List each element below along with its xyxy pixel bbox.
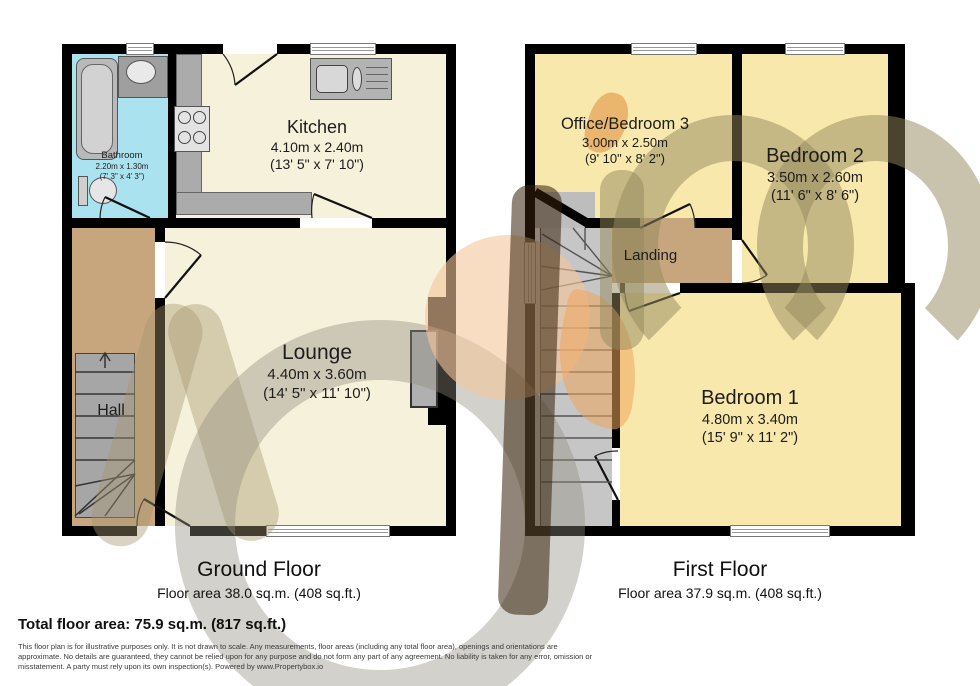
room-name: Office/Bedroom 3 — [530, 114, 720, 135]
room-dim-imperial: (11' 6" x 8' 6") — [735, 187, 895, 205]
disclaimer-text: This floor plan is for illustrative purp… — [18, 642, 968, 672]
landing-label: Landing — [603, 247, 698, 266]
room-name: Lounge — [182, 340, 452, 366]
wall-hall-lounge — [155, 228, 165, 242]
wall-stairs-bedroom1 — [612, 500, 620, 526]
wall-office-landing — [585, 218, 640, 228]
window-office — [631, 43, 697, 55]
disclaimer-line: This floor plan is for illustrative purp… — [18, 642, 968, 652]
wall-hall-lounge — [155, 298, 165, 526]
window-bathroom — [126, 43, 154, 55]
ground-floor-plan: Kitchen 4.10m x 2.40m (13' 5" x 7' 10") … — [62, 44, 456, 536]
window-bedroom2 — [785, 43, 845, 55]
wall-office-landing — [695, 218, 732, 228]
wall-mid-horizontal — [372, 218, 446, 228]
room-dim-metric: 4.40m x 3.60m — [182, 366, 452, 385]
window-lounge — [266, 525, 390, 537]
room-dim-metric: 4.10m x 2.40m — [192, 139, 442, 157]
sink-bowl — [316, 65, 348, 93]
disclaimer-line: misstatement. A party must rely upon its… — [18, 662, 968, 672]
wall — [62, 44, 72, 536]
kitchen-label: Kitchen 4.10m x 2.40m (13' 5" x 7' 10") — [192, 116, 442, 174]
room-dim-metric: 3.00m x 2.50m — [530, 135, 720, 151]
ground-floor-title: Ground Floor — [62, 558, 456, 582]
bathroom-label: Bathroom 2.20m x 1.30m (7' 3" x 4' 3") — [72, 150, 172, 182]
bath-icon — [76, 58, 118, 160]
disclaimer-line: approximate. No details are guaranteed, … — [18, 652, 968, 662]
total-floor-area: Total floor area: 75.9 sq.m. (817 sq.ft.… — [18, 616, 286, 633]
first-floor-title: First Floor — [525, 558, 915, 582]
room-dim-imperial: (13' 5" x 7' 10") — [192, 156, 442, 174]
lounge-label: Lounge 4.40m x 3.60m (14' 5" x 11' 10") — [182, 340, 452, 404]
room-dim-imperial: (7' 3" x 4' 3") — [72, 172, 172, 182]
window-stairs — [524, 242, 536, 304]
ground-floor-area: Floor area 38.0 sq.m. (408 sq.ft.) — [62, 585, 456, 601]
faucet-icon — [352, 67, 362, 91]
wall — [525, 44, 905, 54]
room-name: Landing — [603, 247, 698, 266]
sink-icon — [126, 60, 156, 84]
window-bedroom1 — [730, 525, 830, 537]
wall — [446, 44, 456, 536]
room-dim-imperial: (15' 9" x 11' 2") — [630, 429, 870, 447]
office-bedroom3-label: Office/Bedroom 3 3.00m x 2.50m (9' 10" x… — [530, 114, 720, 167]
floorplan-canvas: Kitchen 4.10m x 2.40m (13' 5" x 7' 10") … — [0, 0, 980, 686]
first-floor-caption: First Floor Floor area 37.9 sq.m. (408 s… — [525, 558, 915, 601]
kitchen-sink-unit — [310, 58, 392, 100]
hob-ring — [178, 111, 191, 124]
room-dim-metric: 3.50m x 2.60m — [735, 169, 895, 187]
ground-floor-caption: Ground Floor Floor area 38.0 sq.m. (408 … — [62, 558, 456, 601]
room-dim-imperial: (14' 5" x 11' 10") — [182, 385, 452, 404]
room-dim-metric: 4.80m x 3.40m — [630, 411, 870, 429]
room-name: Hall — [71, 401, 151, 421]
wall-landing-bedroom1 — [680, 283, 915, 293]
bedroom2-label: Bedroom 2 3.50m x 2.60m (11' 6" x 8' 6") — [735, 144, 895, 205]
wall — [62, 526, 137, 536]
wall — [901, 293, 915, 536]
room-name: Bedroom 1 — [630, 386, 870, 411]
first-floor-area: Floor area 37.9 sq.m. (408 sq.ft.) — [525, 585, 915, 601]
first-stairs — [540, 228, 612, 526]
drainer-lines — [366, 67, 388, 92]
room-dim-metric: 2.20m x 1.30m — [72, 162, 172, 172]
room-name: Kitchen — [192, 116, 442, 139]
ground-stairs — [75, 353, 135, 518]
room-name: Bathroom — [72, 150, 172, 162]
wall-landing-bedroom1 — [620, 283, 625, 293]
wall — [525, 526, 915, 536]
hall-label: Hall — [71, 401, 151, 421]
window-kitchen — [310, 43, 376, 55]
hob-ring — [178, 131, 191, 144]
bedroom1-label: Bedroom 1 4.80m x 3.40m (15' 9" x 11' 2"… — [630, 386, 870, 447]
bath-inner — [81, 64, 113, 154]
first-floor-plan: Office/Bedroom 3 3.00m x 2.50m (9' 10" x… — [525, 44, 915, 536]
room-name: Bedroom 2 — [735, 144, 895, 169]
wall-stairs-bedroom1 — [612, 293, 620, 448]
wall-mid-horizontal — [72, 218, 300, 228]
room-dim-imperial: (9' 10" x 8' 2") — [530, 151, 720, 167]
kitchen-counter-horizontal — [176, 192, 312, 215]
